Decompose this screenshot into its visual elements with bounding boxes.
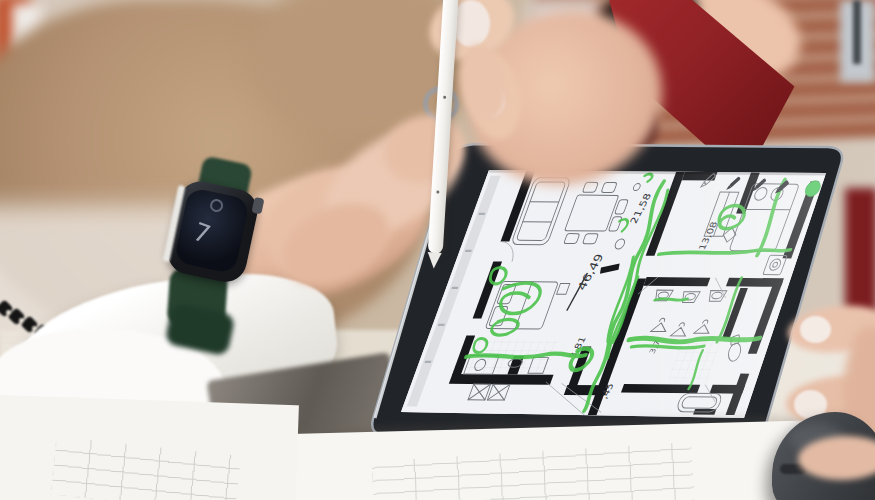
stylus-tip <box>427 252 442 269</box>
floorplan-print <box>372 442 695 500</box>
paper-sheet-front <box>0 395 299 500</box>
paper-sheet-front <box>237 421 804 500</box>
watch-numeral: 7 <box>190 217 215 250</box>
floorplan-print <box>51 437 241 500</box>
watch-complication-icon <box>209 198 224 213</box>
watch-screen[interactable]: 7 <box>174 187 250 274</box>
watch-case: 7 <box>164 178 262 287</box>
watch-crown <box>251 197 264 215</box>
photo-scene: 21,58 46,49 3,81 13,08 3,7 ,45 <box>0 0 875 500</box>
fingernail <box>800 316 831 343</box>
